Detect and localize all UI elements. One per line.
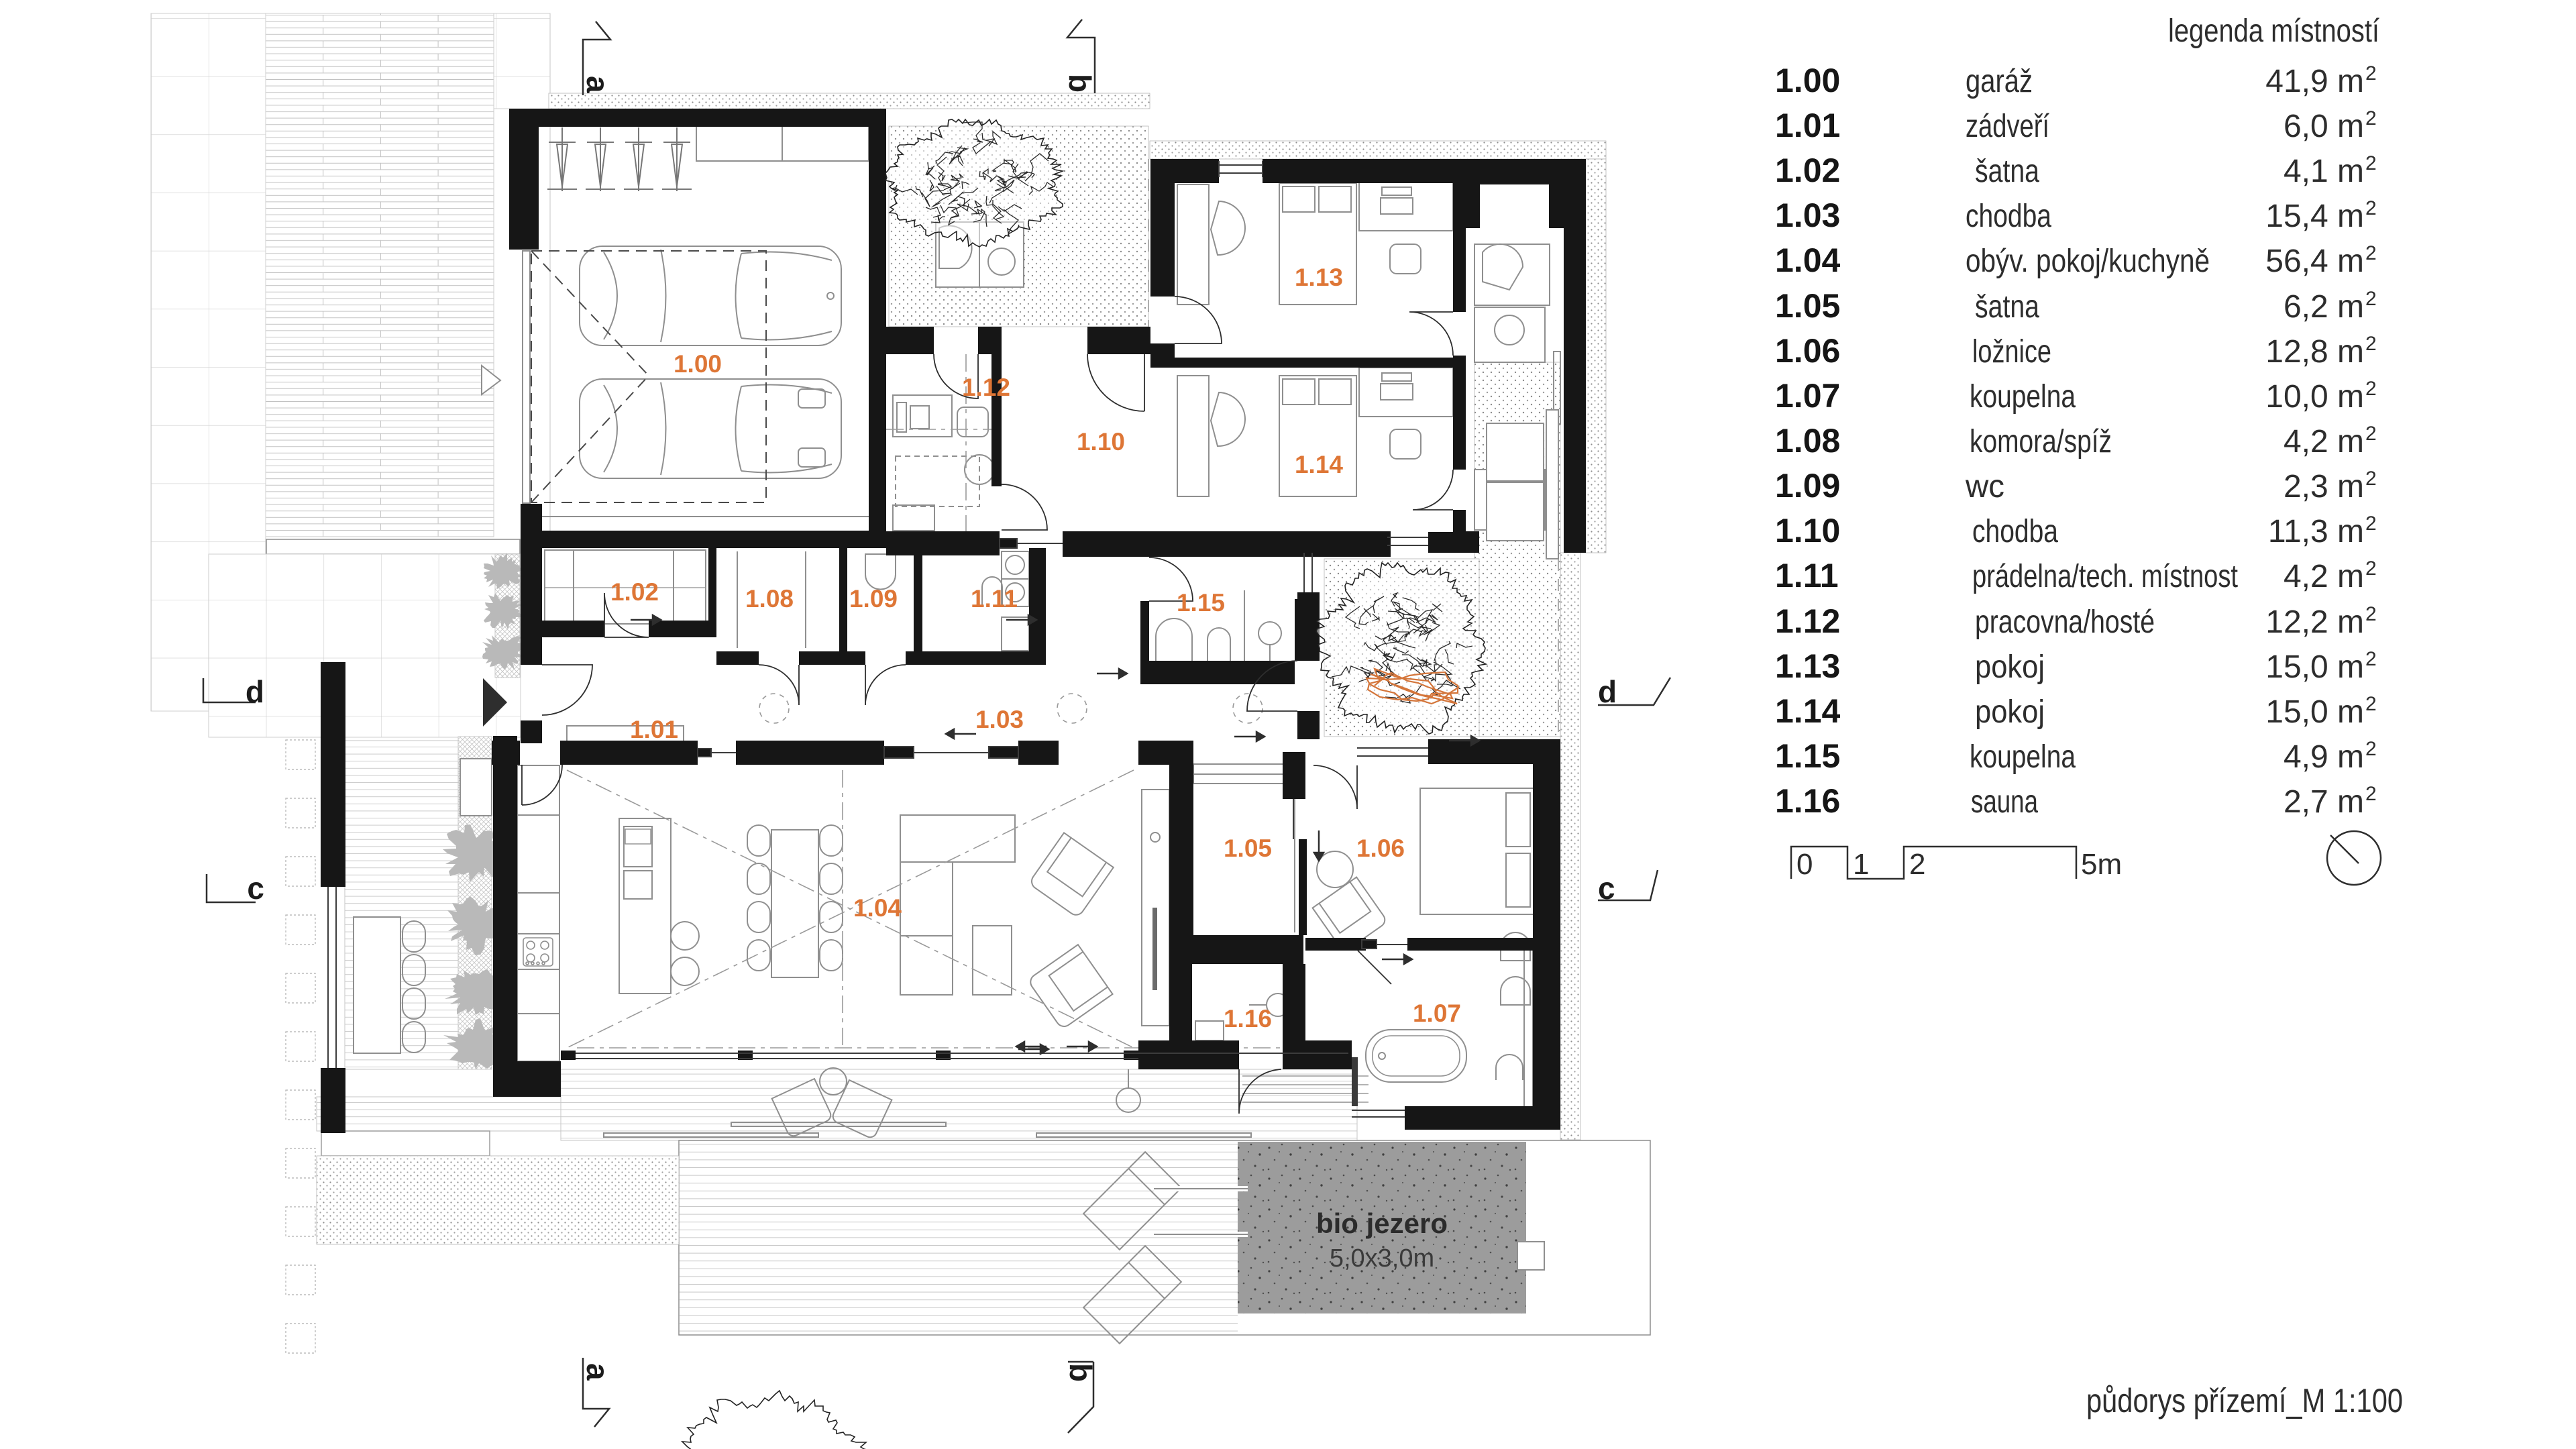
svg-text:1.04: 1.04 (1775, 241, 1841, 279)
svg-text:2: 2 (2365, 333, 2377, 355)
svg-text:půdorys přízemí_M 1:100: půdorys přízemí_M 1:100 (2086, 1382, 2403, 1419)
svg-text:pracovna/hosté: pracovna/hosté (1975, 604, 2155, 640)
svg-text:wc: wc (1965, 469, 2004, 504)
svg-text:obýv. pokoj/kuchyně: obýv. pokoj/kuchyně (1966, 244, 2210, 279)
svg-text:bio jezero: bio jezero (1316, 1207, 1448, 1239)
svg-text:2: 2 (2365, 693, 2377, 715)
svg-text:1.08: 1.08 (1775, 422, 1840, 460)
svg-text:1.16: 1.16 (1224, 1005, 1272, 1032)
svg-text:2: 2 (2365, 378, 2377, 400)
svg-text:legenda místností: legenda místností (2168, 13, 2380, 49)
svg-text:a: a (580, 76, 615, 93)
svg-text:2: 2 (2365, 197, 2377, 219)
svg-text:10,0 m: 10,0 m (2265, 379, 2364, 415)
svg-text:1.16: 1.16 (1775, 782, 1840, 820)
svg-text:1.06: 1.06 (1775, 332, 1840, 370)
svg-text:1.02: 1.02 (610, 578, 659, 606)
svg-text:šatna: šatna (1975, 289, 2039, 325)
svg-text:1.12: 1.12 (962, 374, 1010, 401)
svg-text:1.05: 1.05 (1775, 287, 1840, 325)
svg-text:zádveří: zádveří (1966, 109, 2050, 144)
svg-text:2: 2 (2365, 288, 2377, 310)
svg-text:pokoj: pokoj (1975, 649, 2045, 685)
svg-text:c: c (247, 871, 264, 906)
svg-text:1.01: 1.01 (1775, 107, 1840, 144)
svg-text:komora/spíž: komora/spíž (1970, 424, 2112, 460)
svg-text:2,7 m: 2,7 m (2284, 784, 2364, 820)
svg-text:5m: 5m (2081, 848, 2122, 881)
svg-text:c: c (1598, 871, 1615, 906)
svg-text:ložnice: ložnice (1972, 334, 2051, 370)
svg-text:2: 2 (2365, 557, 2377, 580)
svg-text:1: 1 (1853, 848, 1869, 881)
svg-text:1.08: 1.08 (745, 585, 794, 612)
svg-text:1.00: 1.00 (1775, 62, 1840, 99)
svg-text:koupelna: koupelna (1970, 739, 2076, 775)
svg-text:2: 2 (2365, 468, 2377, 490)
svg-text:12,8 m: 12,8 m (2265, 334, 2364, 370)
svg-text:2: 2 (1909, 848, 1925, 881)
svg-text:1.07: 1.07 (1413, 1000, 1461, 1027)
svg-text:1.02: 1.02 (1775, 152, 1840, 189)
svg-text:15,0 m: 15,0 m (2265, 649, 2364, 685)
svg-text:1.09: 1.09 (1775, 467, 1840, 504)
svg-text:1.07: 1.07 (1775, 377, 1840, 415)
svg-text:11,3 m: 11,3 m (2268, 514, 2364, 549)
svg-text:2: 2 (2365, 513, 2377, 535)
svg-text:2: 2 (2365, 783, 2377, 805)
svg-text:1.03: 1.03 (1775, 197, 1840, 234)
svg-text:1.11: 1.11 (1775, 557, 1839, 594)
svg-text:1.13: 1.13 (1775, 647, 1840, 685)
svg-text:koupelna: koupelna (1970, 379, 2076, 415)
svg-text:b: b (1063, 74, 1097, 93)
svg-text:1.15: 1.15 (1177, 589, 1225, 616)
svg-text:2,3 m: 2,3 m (2284, 469, 2364, 504)
svg-text:2: 2 (2365, 242, 2377, 264)
svg-text:chodba: chodba (1966, 199, 2051, 234)
svg-text:1.05: 1.05 (1224, 835, 1272, 862)
svg-text:1.01: 1.01 (630, 716, 678, 743)
svg-text:1.14: 1.14 (1775, 692, 1841, 730)
svg-text:1.14: 1.14 (1295, 451, 1343, 478)
svg-text:2: 2 (2365, 738, 2377, 760)
svg-text:1.15: 1.15 (1775, 737, 1840, 775)
svg-text:4,9 m: 4,9 m (2284, 739, 2364, 775)
svg-text:pokoj: pokoj (1975, 694, 2045, 730)
svg-text:0: 0 (1796, 848, 1813, 881)
svg-text:12,2 m: 12,2 m (2265, 604, 2364, 640)
svg-text:2: 2 (2365, 152, 2377, 174)
svg-text:41,9 m: 41,9 m (2265, 64, 2364, 99)
svg-text:1.09: 1.09 (849, 585, 898, 612)
svg-text:1.12: 1.12 (1775, 602, 1840, 640)
svg-text:2: 2 (2365, 648, 2377, 670)
svg-text:sauna: sauna (1971, 784, 2038, 820)
svg-text:1.11: 1.11 (971, 585, 1018, 612)
svg-text:1.06: 1.06 (1356, 835, 1405, 862)
svg-text:1.10: 1.10 (1775, 512, 1840, 549)
svg-text:56,4 m: 56,4 m (2265, 244, 2364, 279)
svg-text:1.03: 1.03 (975, 706, 1024, 733)
svg-text:2: 2 (2365, 107, 2377, 129)
svg-text:2: 2 (2365, 603, 2377, 625)
svg-text:a: a (580, 1363, 615, 1381)
svg-text:4,2 m: 4,2 m (2284, 424, 2364, 460)
svg-text:1.10: 1.10 (1077, 428, 1125, 455)
svg-text:prádelna/tech. místnost: prádelna/tech. místnost (1972, 559, 2238, 594)
svg-text:2: 2 (2365, 62, 2377, 85)
svg-text:4,1 m: 4,1 m (2284, 154, 2364, 189)
svg-text:d: d (1598, 674, 1617, 709)
svg-text:garáž: garáž (1966, 64, 2033, 99)
svg-text:6,0 m: 6,0 m (2284, 109, 2364, 144)
svg-text:2: 2 (2365, 423, 2377, 445)
svg-text:d: d (246, 674, 264, 709)
svg-text:6,2 m: 6,2 m (2284, 289, 2364, 325)
svg-text:1.00: 1.00 (674, 350, 722, 378)
svg-text:1.13: 1.13 (1295, 264, 1343, 291)
svg-text:15,4 m: 15,4 m (2265, 199, 2364, 234)
svg-text:chodba: chodba (1972, 514, 2058, 549)
svg-text:1.04: 1.04 (853, 894, 902, 922)
svg-text:4,2 m: 4,2 m (2284, 559, 2364, 594)
svg-text:15,0 m: 15,0 m (2265, 694, 2364, 730)
svg-text:5,0x3,0m: 5,0x3,0m (1330, 1244, 1434, 1273)
svg-text:b: b (1063, 1363, 1098, 1382)
svg-text:šatna: šatna (1975, 154, 2039, 189)
